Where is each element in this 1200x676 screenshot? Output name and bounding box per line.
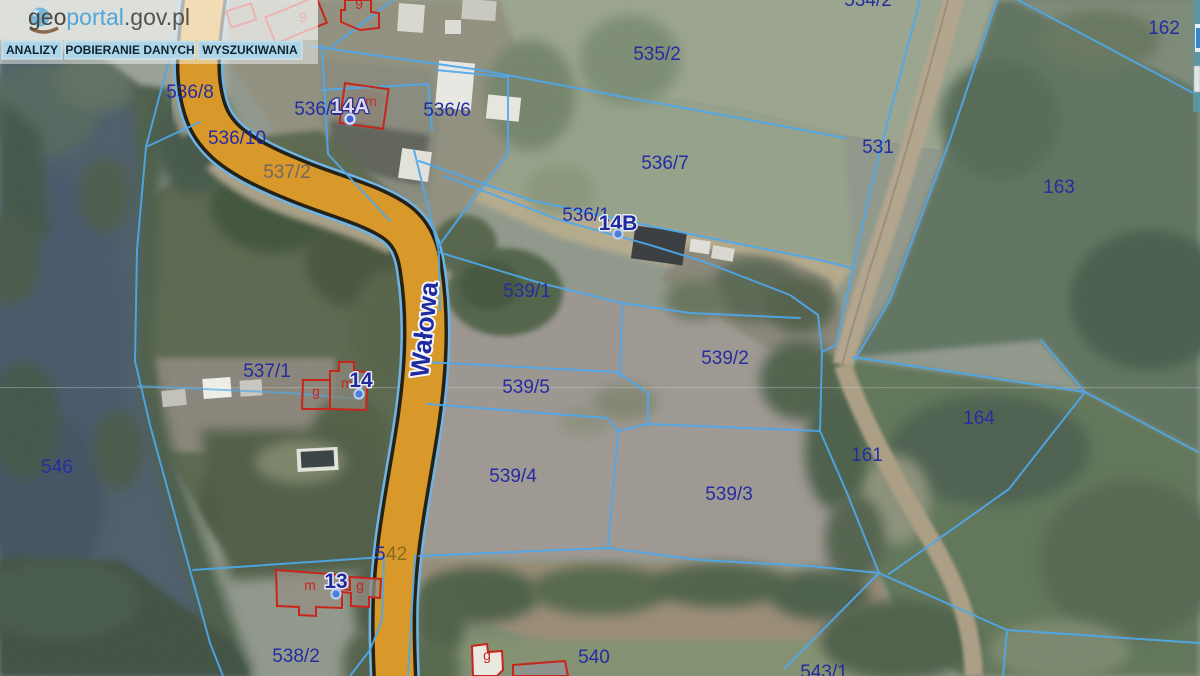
svg-text:161: 161 <box>851 445 883 466</box>
svg-text:WYSZUKIWANIA: WYSZUKIWANIA <box>202 43 298 57</box>
svg-text:536/7: 536/7 <box>641 153 689 174</box>
svg-text:538/2: 538/2 <box>272 646 320 667</box>
svg-text:5: 5 <box>375 544 386 565</box>
svg-text:531: 531 <box>862 137 894 158</box>
svg-text:543/1: 543/1 <box>800 662 848 676</box>
svg-text:14: 14 <box>349 369 373 392</box>
svg-text:163: 163 <box>1043 177 1075 198</box>
svg-text:m: m <box>304 577 316 593</box>
svg-text:geoportal.gov.pl: geoportal.gov.pl <box>28 4 190 30</box>
svg-text:536/8: 536/8 <box>166 82 214 103</box>
svg-text:537/2: 537/2 <box>263 162 311 183</box>
svg-text:g: g <box>483 647 491 663</box>
svg-text:539/3: 539/3 <box>705 484 753 505</box>
svg-text:ANALIZY: ANALIZY <box>6 43 58 57</box>
svg-text:POBIERANIE DANYCH: POBIERANIE DANYCH <box>65 43 194 57</box>
svg-text:546: 546 <box>41 457 73 478</box>
svg-text:540: 540 <box>578 647 610 668</box>
svg-text:535/2: 535/2 <box>633 44 681 65</box>
svg-text:539/5: 539/5 <box>502 377 550 398</box>
svg-text:9: 9 <box>355 0 363 12</box>
svg-text:g: g <box>312 383 320 399</box>
svg-text:42: 42 <box>386 544 407 565</box>
svg-text:534/2: 534/2 <box>844 0 892 11</box>
svg-text:536/10: 536/10 <box>208 128 266 149</box>
svg-text:162: 162 <box>1148 18 1180 39</box>
svg-text:537/1: 537/1 <box>243 361 291 382</box>
svg-text:g: g <box>356 577 364 593</box>
svg-text:539/4: 539/4 <box>489 466 537 487</box>
svg-text:539/2: 539/2 <box>701 348 749 369</box>
svg-text:539/1: 539/1 <box>503 281 551 302</box>
svg-text:536/6: 536/6 <box>423 100 471 121</box>
svg-text:164: 164 <box>963 408 995 429</box>
